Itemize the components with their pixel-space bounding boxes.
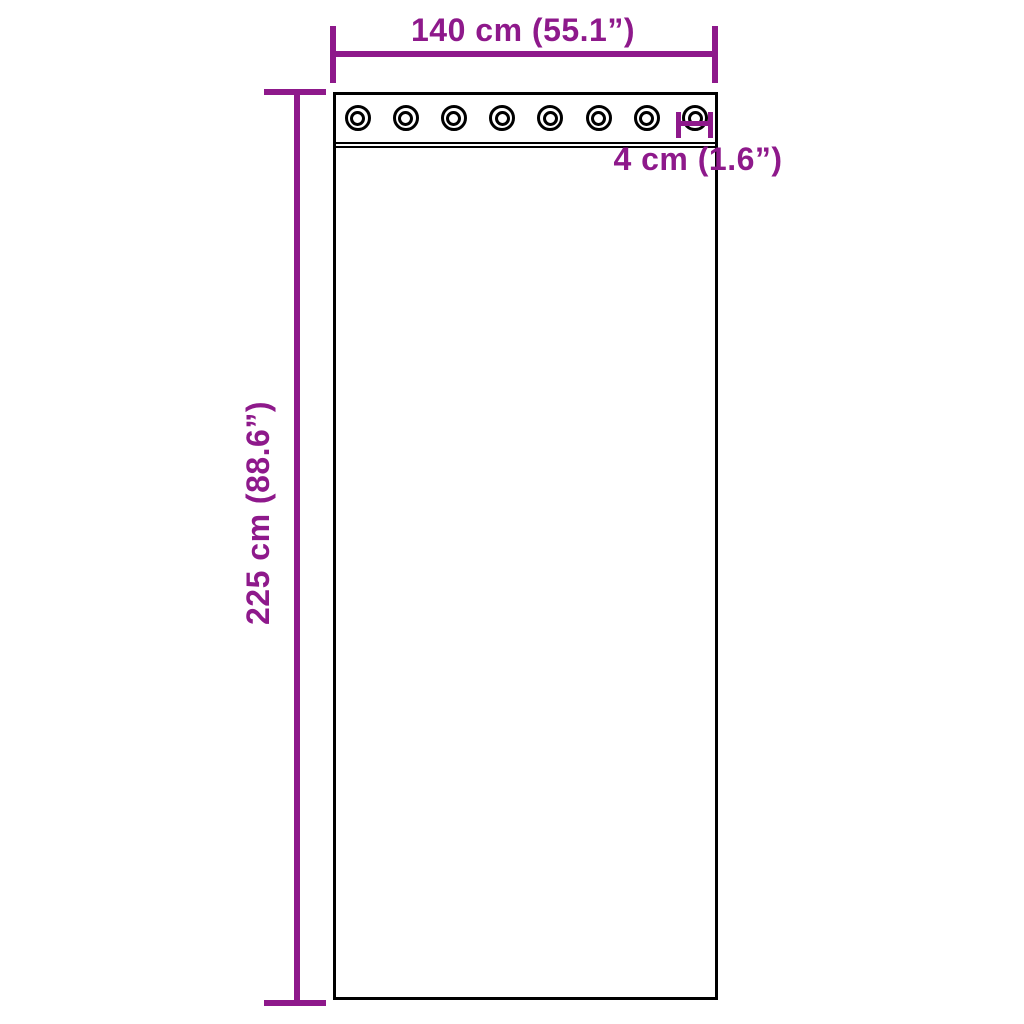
grommet-ring bbox=[682, 105, 708, 131]
height-dimension-cap-bottom bbox=[264, 1000, 326, 1006]
height-dimension-line bbox=[294, 92, 300, 1003]
grommet-hole bbox=[350, 111, 365, 126]
grommet-hole bbox=[543, 111, 558, 126]
width-dimension-cap-left bbox=[330, 26, 336, 83]
grommet-ring bbox=[393, 105, 419, 131]
grommet-ring bbox=[489, 105, 515, 131]
grommet-ring bbox=[586, 105, 612, 131]
grommet-hole bbox=[591, 111, 606, 126]
grommet-dimension-label: 4 cm (1.6”) bbox=[613, 143, 782, 175]
width-dimension-cap-right bbox=[712, 26, 718, 83]
grommet-dimension-tick-left bbox=[676, 112, 681, 138]
dimension-diagram: 140 cm (55.1”) 225 cm (88.6”) 4 cm (1.6”… bbox=[0, 0, 1024, 1024]
grommet-hole bbox=[446, 111, 461, 126]
grommet-ring bbox=[634, 105, 660, 131]
grommet-ring bbox=[345, 105, 371, 131]
grommet-ring bbox=[441, 105, 467, 131]
curtain-panel-outline bbox=[333, 92, 718, 1000]
grommet-hole bbox=[495, 111, 510, 126]
height-dimension-label: 225 cm (88.6”) bbox=[242, 401, 274, 625]
grommet-hole bbox=[639, 111, 654, 126]
height-dimension-cap-top bbox=[264, 89, 326, 95]
grommet-dimension-tick-right bbox=[708, 112, 713, 138]
width-dimension-label: 140 cm (55.1”) bbox=[411, 14, 635, 46]
width-dimension-line bbox=[333, 51, 718, 57]
grommet-hole bbox=[398, 111, 413, 126]
